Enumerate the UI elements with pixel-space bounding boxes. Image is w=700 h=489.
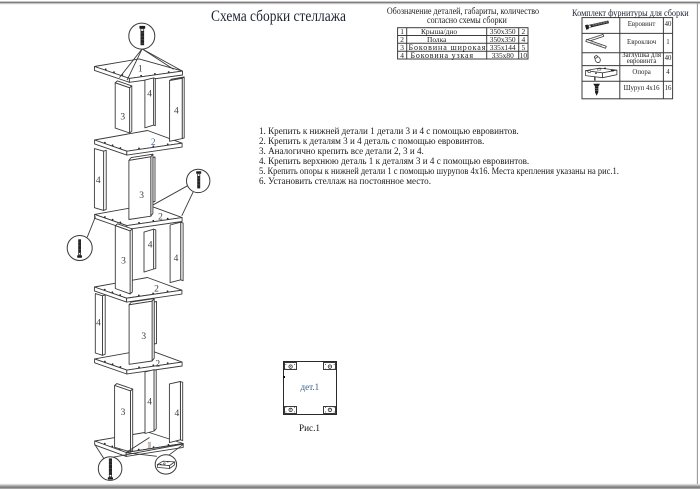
svg-text:4: 4 bbox=[148, 240, 153, 250]
svg-text:1: 1 bbox=[138, 65, 143, 75]
svg-text:4: 4 bbox=[147, 90, 152, 100]
svg-text:2: 2 bbox=[158, 212, 163, 222]
svg-text:3: 3 bbox=[121, 257, 126, 267]
svg-text:2: 2 bbox=[151, 138, 156, 148]
svg-text:4: 4 bbox=[147, 398, 152, 408]
svg-text:2: 2 bbox=[154, 284, 159, 294]
svg-text:3: 3 bbox=[139, 191, 144, 201]
svg-text:3: 3 bbox=[120, 113, 125, 123]
svg-text:4: 4 bbox=[96, 319, 101, 329]
svg-text:3: 3 bbox=[141, 332, 146, 342]
svg-text:4: 4 bbox=[96, 176, 101, 186]
svg-text:4: 4 bbox=[175, 409, 180, 419]
svg-text:4: 4 bbox=[174, 107, 179, 117]
svg-text:3: 3 bbox=[121, 408, 126, 418]
svg-text:4: 4 bbox=[174, 254, 179, 264]
svg-text:2: 2 bbox=[155, 360, 160, 370]
